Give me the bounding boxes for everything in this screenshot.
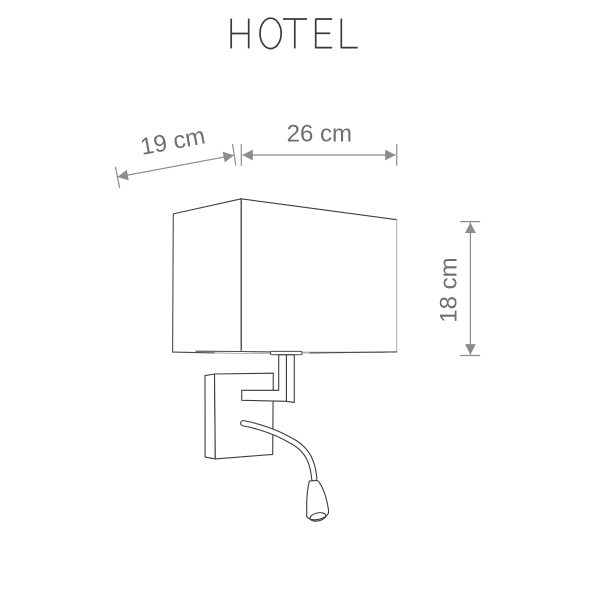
svg-text:19 cm: 19 cm [138,123,207,161]
svg-text:26 cm: 26 cm [287,121,352,148]
svg-text:18 cm: 18 cm [435,257,462,322]
